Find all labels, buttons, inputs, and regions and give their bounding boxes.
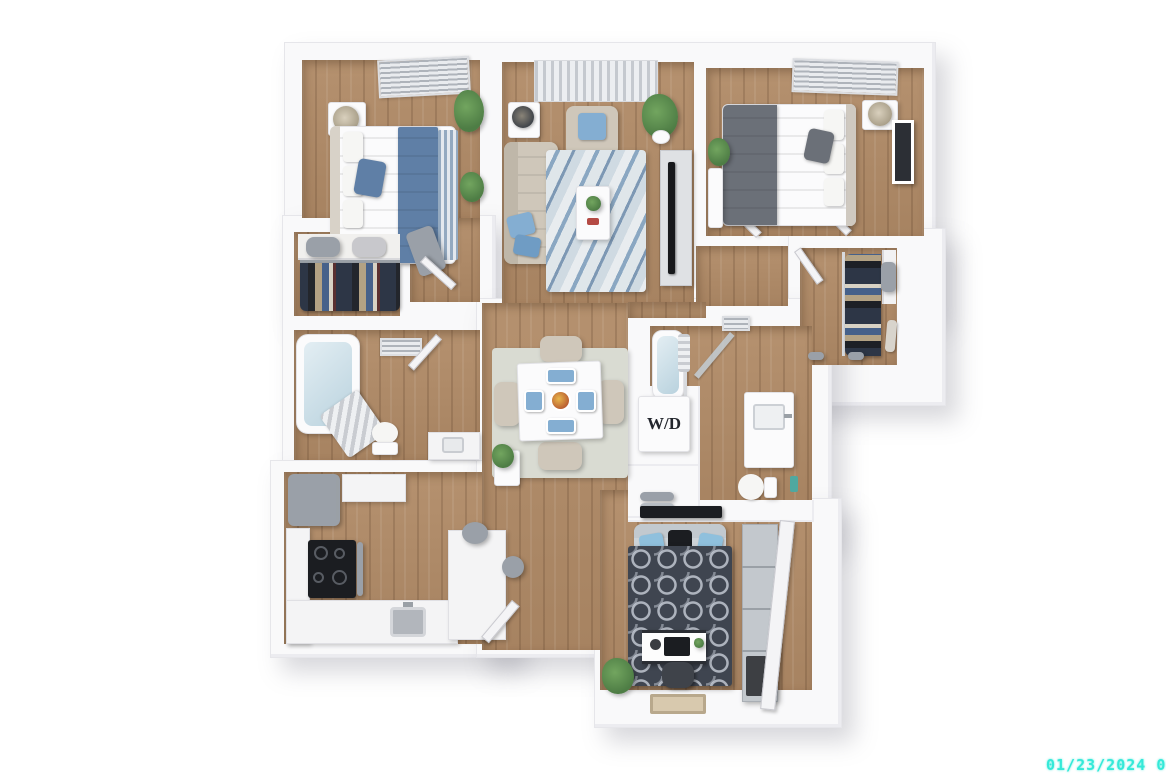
pillow-bedroom-2 xyxy=(824,178,844,206)
upper-cabinet xyxy=(342,474,406,502)
bathtub-water-bathroom-2 xyxy=(657,336,679,394)
washer-dryer-label: W/D xyxy=(638,396,690,452)
ceiling-vent-bathroom-1 xyxy=(380,338,422,356)
burner xyxy=(314,546,328,560)
wall-mounted-vacuum xyxy=(881,262,896,292)
blanket-bedroom-2 xyxy=(723,105,777,225)
coffee-table-plant xyxy=(586,196,601,211)
stool xyxy=(502,556,524,578)
shoes xyxy=(808,352,824,360)
tv xyxy=(668,162,675,274)
pillow-bedroom-1 xyxy=(343,200,363,228)
ceiling-vent-bedroom-1 xyxy=(377,56,471,99)
lamp-living xyxy=(512,106,534,128)
desk-lamp-den xyxy=(650,639,661,650)
kitchen-sink xyxy=(390,607,426,637)
sink-bathroom-1 xyxy=(442,437,464,453)
toilet-bowl-bathroom-2 xyxy=(738,474,764,500)
wall-art-bedroom-2 xyxy=(892,120,914,184)
plant-bedroom-1-window xyxy=(454,90,484,132)
toilet-tank-bathroom-2 xyxy=(764,477,777,498)
storage-bag xyxy=(306,237,340,257)
refrigerator xyxy=(288,474,340,526)
floor-plan-render: W/D 01/23/2024 06:5 xyxy=(0,0,1166,777)
doormat-entry xyxy=(650,694,706,714)
burner xyxy=(332,570,347,585)
plant-bedroom-1 xyxy=(460,172,484,202)
placemat xyxy=(546,418,576,434)
pillow-bedroom-1 xyxy=(343,132,363,162)
shower-curtain-bathroom-2 xyxy=(678,334,690,372)
armchair-pillow xyxy=(578,113,606,140)
towels-linen-closet xyxy=(640,492,674,501)
placemat xyxy=(546,368,576,384)
refrigerator-handle xyxy=(336,480,339,520)
faucet-bathroom-2 xyxy=(784,414,792,418)
floor-corridor xyxy=(696,246,788,306)
media-console-den xyxy=(640,506,722,518)
coffee-table xyxy=(576,186,610,240)
placemat xyxy=(524,390,544,412)
window-blinds-living xyxy=(534,60,658,102)
plant-den xyxy=(602,658,634,694)
dining-chair-bottom xyxy=(538,442,582,470)
timestamp-overlay: 01/23/2024 06:5 xyxy=(1046,756,1166,776)
burner xyxy=(313,572,324,583)
lamp-bedroom-2 xyxy=(868,102,892,126)
sink-bathroom-2 xyxy=(753,404,785,430)
hanging-clothes-left-closet xyxy=(300,263,400,311)
toiletry-item xyxy=(790,476,798,492)
canister xyxy=(462,522,488,544)
kitchen-faucet xyxy=(403,602,413,607)
dresser-bedroom-2 xyxy=(708,168,723,228)
ceiling-vent-bathroom-2 xyxy=(722,316,750,331)
fruit-bowl xyxy=(552,392,569,409)
toilet-bowl-bathroom-1 xyxy=(372,422,398,444)
desk-plant-den xyxy=(694,638,704,648)
dining-chair-left xyxy=(494,382,520,426)
toilet-tank-bathroom-1 xyxy=(372,442,398,455)
storage-bag xyxy=(352,237,386,257)
wardrobe-shelf xyxy=(742,566,778,568)
burner xyxy=(334,548,345,559)
floor-corridor-connector xyxy=(628,302,706,318)
laptop-den xyxy=(664,637,690,656)
sofa-pillow xyxy=(512,234,541,258)
ceiling-vent-bedroom-2 xyxy=(791,58,898,96)
dining-chair-top xyxy=(540,336,582,362)
plant-dining xyxy=(492,444,514,468)
coffee-table-decor xyxy=(587,218,599,225)
plant-bedroom-2 xyxy=(708,138,730,166)
counter-bottom xyxy=(286,600,458,644)
headboard-bedroom-2 xyxy=(846,104,856,226)
hanging-clothes-walkin xyxy=(845,254,881,356)
oven-handle xyxy=(357,542,363,596)
bed-runner-bedroom-1 xyxy=(438,130,458,260)
plant-pot-living xyxy=(652,130,670,144)
placemat xyxy=(576,390,596,412)
shoes xyxy=(848,352,864,360)
tv-console xyxy=(660,150,692,286)
office-chair-den xyxy=(662,662,694,688)
